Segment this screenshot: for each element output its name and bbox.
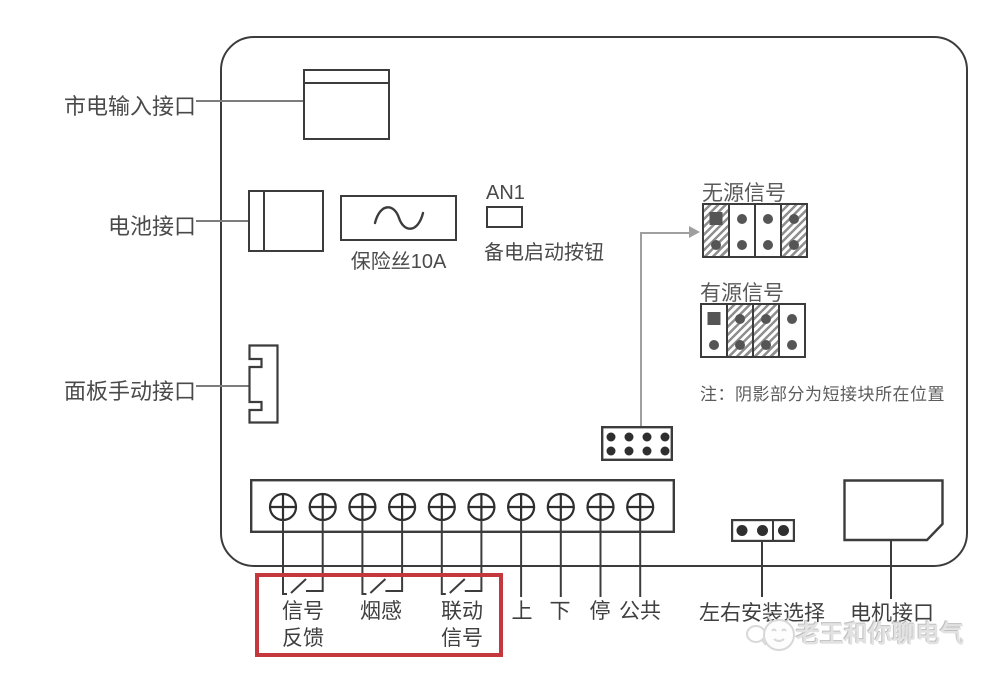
lr-select-pin-header-3pin	[731, 519, 795, 542]
control-board-diagram: 市电输入接口 电池接口 面板手动接口 保险丝10A AN1 备电启动按钮 无源信…	[0, 0, 992, 676]
panel-manual-label: 面板手动接口	[30, 374, 196, 406]
pin-dot	[789, 214, 799, 224]
panel-manual-connector	[248, 344, 279, 424]
screw-terminal-icon	[627, 494, 653, 520]
pin-dot	[787, 340, 797, 350]
screw-terminal-icon	[310, 494, 336, 520]
mains-leader-line	[196, 100, 304, 102]
an1-label: AN1	[486, 182, 525, 205]
jumper-column	[782, 205, 806, 256]
sine-wave-icon	[342, 197, 455, 239]
pin-dot	[761, 340, 771, 350]
lr-select-wire	[761, 541, 763, 597]
jumper-column	[780, 305, 804, 356]
pin-dot	[761, 314, 771, 324]
mains-input-label: 市电输入接口	[30, 89, 196, 121]
motor-wire	[890, 541, 892, 599]
jumper-column	[702, 305, 728, 356]
panel-manual-leader-line	[196, 385, 249, 387]
jumper-column	[704, 205, 730, 256]
pin-dot	[737, 240, 747, 250]
jumper-note: 注：阴影部分为短接块所在位置	[700, 380, 945, 405]
pin-dot	[763, 240, 773, 250]
fuse-box	[340, 195, 457, 241]
watermark-text: 老王和你聊电气	[796, 614, 964, 649]
screw-terminal-icon	[429, 494, 455, 520]
screw-terminal-icon	[588, 494, 614, 520]
screw-terminal-icon	[468, 494, 494, 520]
pin-dot	[709, 340, 719, 350]
arrow-line-horizontal	[640, 232, 694, 234]
jumper-column	[754, 305, 780, 356]
mains-input-connector	[303, 69, 390, 140]
signal-pin-header-8pin	[601, 426, 673, 461]
battery-leader-line	[196, 220, 249, 222]
jumper-column	[730, 205, 756, 256]
fuse-label: 保险丝10A	[340, 245, 457, 274]
backup-start-button-label: 备电启动按钮	[484, 236, 604, 265]
screw-terminal-icon	[389, 494, 415, 520]
pin1-square-marker	[708, 312, 721, 325]
watermark-mascot-icon	[745, 608, 799, 658]
screw-terminal-icon	[548, 494, 574, 520]
battery-connector-divider	[263, 192, 265, 250]
arrow-line-vertical	[640, 233, 642, 426]
arrow-head-icon	[689, 226, 700, 238]
jumper-column	[756, 205, 782, 256]
terminal-label-line2: 反馈	[253, 625, 353, 652]
mains-connector-divider	[303, 82, 390, 84]
terminal-label-common: 公共	[590, 598, 690, 625]
pin-dot	[735, 340, 745, 350]
pin1-square-marker	[710, 212, 723, 225]
screw-terminal-icon	[508, 494, 534, 520]
jumper-column	[728, 305, 754, 356]
terminal-label-line1: 公共	[590, 598, 690, 625]
screw-terminal-icon	[349, 494, 375, 520]
pin-dots	[737, 525, 790, 536]
pin-dot	[737, 214, 747, 224]
pin-dot	[789, 240, 799, 250]
motor-connector	[843, 479, 944, 542]
pin-dot	[763, 214, 773, 224]
an1-button	[486, 206, 523, 228]
terminal-label-line2: 信号	[412, 625, 512, 652]
active-signal-jumper	[700, 303, 806, 358]
screw-terminal-icon	[270, 494, 296, 520]
battery-connector	[248, 190, 324, 252]
passive-signal-jumper	[702, 203, 808, 258]
pin-dot	[711, 240, 721, 250]
pin-dot	[735, 314, 745, 324]
pin-dot	[787, 314, 797, 324]
battery-label: 电池接口	[30, 209, 196, 241]
